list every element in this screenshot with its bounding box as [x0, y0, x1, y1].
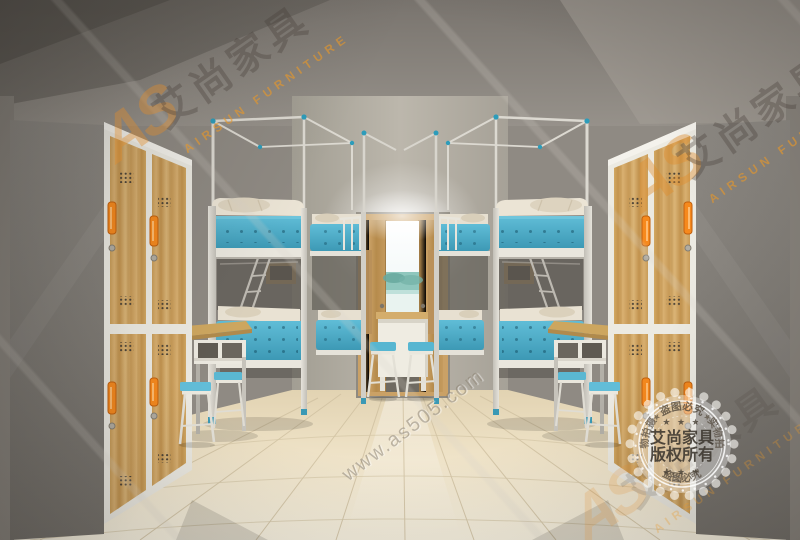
room-scene [0, 0, 800, 540]
locker-door [152, 334, 186, 486]
canopy-joint [362, 131, 367, 136]
under-bunk-recess [217, 258, 301, 310]
center-desk-top [376, 312, 430, 319]
pillow [321, 310, 341, 318]
center-desk-shade [378, 319, 428, 323]
bed-foot [301, 409, 307, 415]
hutch-shelf-opening [198, 343, 218, 358]
dormitory-rendering: AS 艾尚家具 AIRSUN FURNITURE AS 艾尚家具 AIRSUN … [0, 0, 800, 540]
bed-foot [361, 398, 366, 404]
center-desk-leg [380, 377, 385, 391]
door-handle-right [421, 304, 425, 308]
center-desk-leg [421, 377, 426, 391]
window-landscape [383, 272, 423, 319]
hutch-shelf-opening [222, 343, 242, 358]
bed-post [301, 208, 307, 414]
door-handle-left [380, 304, 384, 308]
bed-post [361, 212, 366, 402]
desk-leg [196, 364, 200, 434]
pillow [315, 214, 339, 223]
pillow [225, 307, 261, 318]
